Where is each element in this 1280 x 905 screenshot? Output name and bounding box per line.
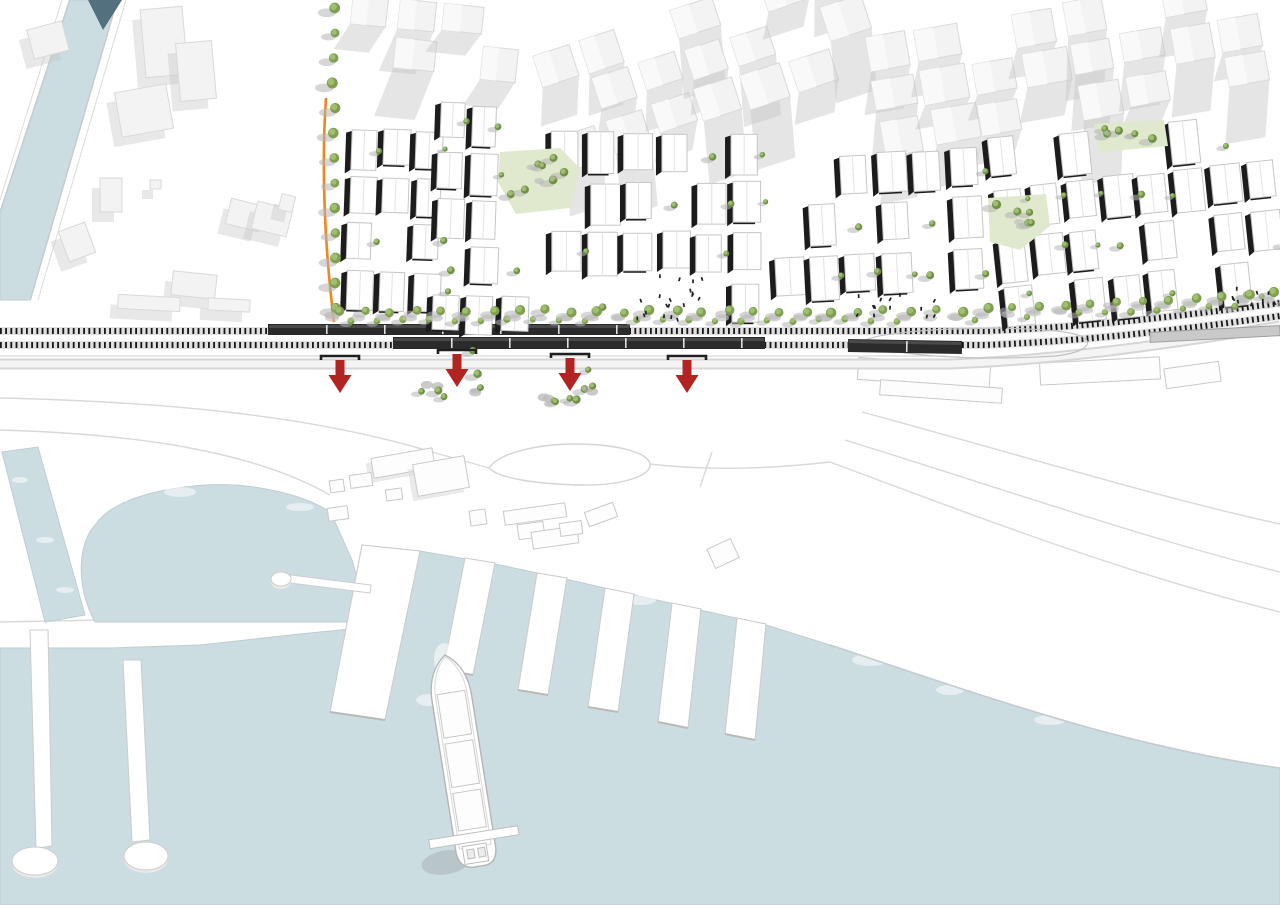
site-plan-illustration: Waterfront railway masterplan site plan … <box>0 0 1280 905</box>
site-plan-canvas: Waterfront railway masterplan site plan … <box>0 0 1280 905</box>
